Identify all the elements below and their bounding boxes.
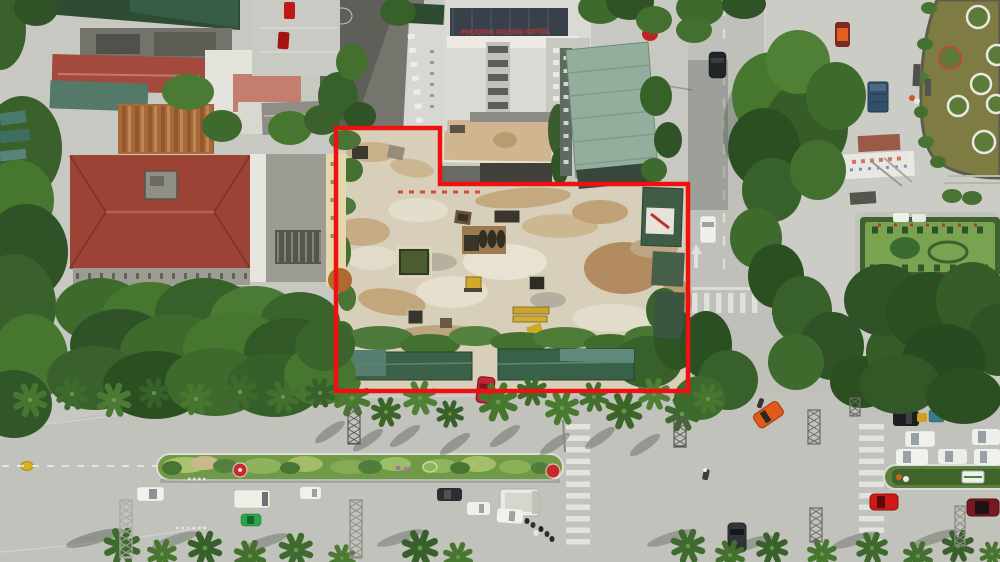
bench [925,79,931,96]
rust-roof [118,104,214,154]
tree [926,368,1000,424]
tree [295,319,355,371]
tree [654,122,682,158]
maroon-car-roof [975,501,989,514]
green-tarp [653,291,685,338]
pedestrian [531,522,536,528]
flat-roof-dark [480,163,552,183]
car-windows [906,413,912,424]
car-windows [877,496,885,508]
pedestrian [909,95,915,101]
pedestrian [545,531,550,537]
median-patch [499,460,531,474]
arch-opening [488,230,497,248]
van-windshield [262,492,268,506]
gray-rooftop-inner [96,34,140,54]
tree [202,110,242,142]
tree [640,76,672,116]
rubble [530,292,566,308]
median-bush [280,462,300,474]
arch-opening [497,230,506,248]
helmet [703,468,707,472]
stage-floor [858,134,901,152]
hotel-entrance [470,112,554,122]
parked-white-van [893,213,909,222]
tree [768,334,824,390]
worker [903,476,909,482]
shed-teal-top [560,349,634,363]
tree [806,62,866,130]
purple-flowers [404,467,409,471]
machine-treads [464,288,482,292]
tree [860,354,940,414]
garden-bush [962,191,982,205]
pit-tilted-inner [457,213,468,221]
terrace-item [450,125,465,133]
pond-planter [987,45,1000,65]
truck-cab [870,84,886,91]
van-windshield [702,222,714,227]
sage-roof-building [566,42,658,178]
car-windows [903,451,911,463]
pond-bush [914,106,928,118]
worker [896,474,902,480]
tree [790,140,846,200]
tree [162,74,214,110]
car-windshield [730,529,744,535]
pit-wide [494,210,520,223]
rooftop-box-inner [150,176,164,186]
median-bush [358,460,382,474]
pond-planter [971,74,991,94]
dirt-brown [572,200,628,224]
pedestrian [539,526,544,532]
pond-planter [987,95,1000,113]
car-windows [911,433,919,445]
dark-structure [850,191,877,205]
hotel-rooftop-sign: PHƯỢNG HOÀNG HOTEL [461,28,591,36]
median-shadow [160,479,560,483]
green-pit [400,250,428,274]
parking-lot [252,0,340,76]
square-pit [440,318,452,328]
car-windows [444,490,451,499]
pedestrian [914,98,920,104]
square-pit [529,276,545,290]
dirt-bright [388,198,448,222]
arch-opening [479,230,488,248]
car-windows [312,489,317,497]
white-car [896,449,928,465]
tree [641,158,667,182]
tree [676,17,712,43]
white-car [467,502,490,515]
road-shadow-band [688,60,728,210]
pedestrian [550,536,555,542]
flower-center [238,468,242,472]
pond-bush [918,136,934,148]
median-patch [242,458,282,474]
white-van-road [700,216,716,243]
pond-bush [921,2,937,14]
orange-roof [837,28,848,41]
bus-front [532,491,539,514]
parked-white-van [912,214,926,222]
car-windows [978,431,986,443]
median-bush [450,462,470,474]
white-strip-building [250,154,266,282]
red-flower-bed [546,464,560,478]
garden-bush [942,189,962,203]
tree [336,44,368,80]
aerial-photo: PHƯỢNG HOÀNG HOTEL [0,0,1000,562]
orange-tree [328,268,352,292]
sedan-windows [509,511,516,521]
median-bush [162,461,182,475]
car-windows [479,504,484,513]
pond-planter [973,131,995,153]
white-car [905,431,935,447]
topiary-blob [890,237,920,259]
pedestrian [525,518,530,524]
square-pit [408,310,423,324]
dirt-bright [346,246,398,270]
parked-red-car [284,2,295,19]
pedestrian [534,530,539,536]
pond-planter [948,96,968,116]
yellow-beam [513,316,547,322]
green-tarp [651,251,685,287]
car-windows [980,451,987,463]
terrace-stain [493,132,517,148]
parked-red-car [277,32,289,50]
tree [636,6,672,34]
taxi-windows [247,516,254,524]
white-car [300,487,321,499]
yellow-vehicle [917,413,927,422]
aerial-photo-svg [0,0,1000,562]
lane-arrow-stem [694,254,698,268]
pond-bush [930,156,946,168]
bench [912,64,920,86]
purple-flowers [396,466,401,470]
arch-dark-cell [464,235,479,251]
car-windows [945,451,953,462]
pond-planter [967,6,989,28]
yellow-beam [513,307,549,314]
pond-planter [939,47,961,69]
sedan-windows [149,489,157,499]
pond-bush [917,38,933,50]
